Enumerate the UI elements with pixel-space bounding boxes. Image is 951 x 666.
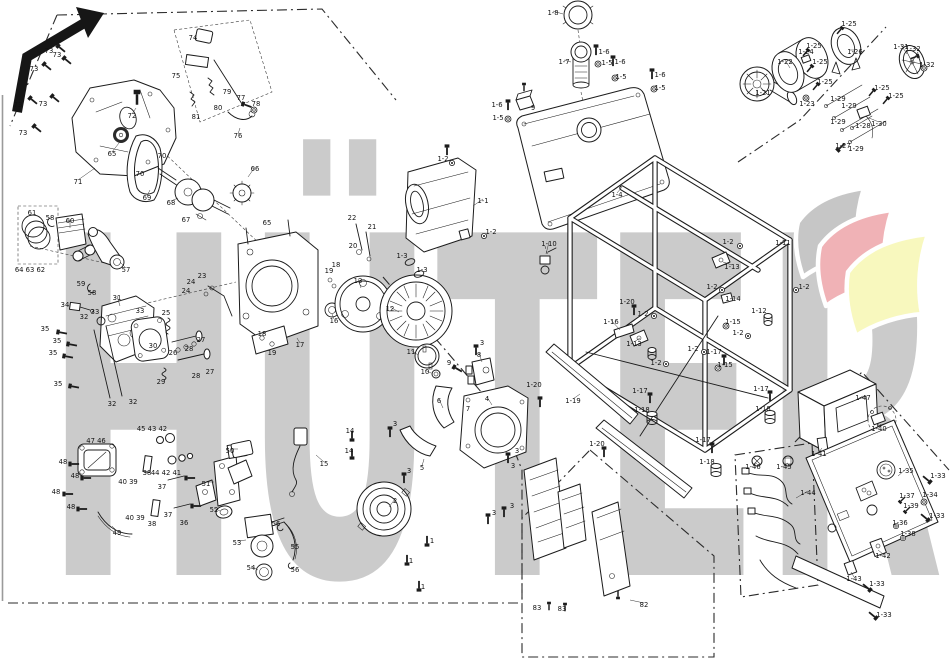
part-number-label: 1-41 (811, 450, 826, 458)
part-number-label: 1-15 (717, 361, 732, 369)
part-number-label: 1-47 (855, 394, 870, 402)
fuel-cap-part-1-8 (563, 1, 593, 29)
part-number-label: 40 39 (125, 514, 144, 522)
part-number-label: 28 (192, 372, 201, 380)
part-number-label: 34 (61, 301, 70, 309)
filler-neck-part-1-7 (571, 42, 591, 88)
exploded-parts-diagram: HÜTER (0, 0, 951, 666)
part-number-label: 1-3 (396, 252, 407, 260)
part-number-label: 9 (447, 359, 451, 367)
part-number-label: 1-6 (491, 101, 502, 109)
part-number-label: 38 (148, 520, 157, 528)
part-number-label: 48 (67, 503, 76, 511)
part-number-label: 65 (108, 150, 117, 158)
part-number-label: 1-5 (492, 114, 503, 122)
part-number-label: 72 (128, 112, 137, 120)
part-number-label: 1-8 (547, 9, 558, 17)
part-number-label: 14 (346, 427, 355, 435)
part-number-label: 35 (54, 380, 63, 388)
part-number-label: 1 (430, 537, 434, 545)
part-number-label: 1-37 (899, 492, 914, 500)
part-number-label: 2 (393, 497, 397, 505)
part-number-label: 1-18 (634, 406, 649, 414)
part-number-label: 1-33 (929, 512, 944, 520)
part-number-label: 6 (437, 397, 441, 405)
part-number-label: 1-17 (695, 436, 710, 444)
part-number-label: 32 (129, 398, 138, 406)
part-number-label: 1-25 (841, 20, 856, 28)
part-number-label: 1-14 (725, 295, 740, 303)
part-number-label: 56 (291, 566, 300, 574)
part-number-label: 1-17 (753, 385, 768, 393)
part-number-label: 30 (149, 342, 158, 350)
part-number-label: 65 (263, 219, 272, 227)
part-number-label: 70 (136, 170, 145, 178)
part-number-label: 1-40 (871, 425, 886, 433)
part-number-label: 1-2 (637, 310, 648, 318)
part-number-label: 1-21 (755, 89, 770, 97)
part-number-label: 1-30 (871, 120, 886, 128)
part-number-label: 37 (164, 511, 173, 519)
part-number-label: 1-10 (541, 240, 556, 248)
part-number-label: 1-1 (477, 197, 488, 205)
part-number-label: 29 (157, 378, 166, 386)
part-number-label: 7 (466, 405, 470, 413)
part-number-label: 31 (113, 294, 122, 302)
part-number-label: 44 42 41 (151, 469, 181, 477)
part-number-label: 83 (533, 604, 542, 612)
part-number-label: 69 (143, 194, 152, 202)
part-number-label: 28 (185, 345, 194, 353)
part-number-label: 40 39 (118, 478, 137, 486)
part-number-label: 64 63 62 (15, 266, 45, 274)
part-number-label: 75 (172, 72, 181, 80)
part-number-label: 61 (28, 209, 37, 217)
part-number-label: 1-5 (615, 73, 626, 81)
part-number-label: 54 (247, 564, 256, 572)
part-number-label: 27 (197, 336, 206, 344)
part-number-label: 53 (233, 539, 242, 547)
part-number-label: 57 (122, 266, 131, 274)
part-number-label: 67 (182, 216, 191, 224)
part-number-label: 1-6 (614, 58, 625, 66)
part-number-label: 13 (354, 277, 363, 285)
part-number-label: 1-18 (755, 405, 770, 413)
part-number-label: 78 (252, 100, 261, 108)
part-number-label: 45 43 42 (137, 425, 167, 433)
part-number-label: 68 (167, 199, 176, 207)
part-number-label: 70 (158, 152, 167, 160)
part-number-label: 38 (143, 469, 152, 477)
part-number-label: 1-15 (725, 318, 740, 326)
part-number-label: 1-43 (846, 575, 861, 583)
part-number-label: 19 (268, 349, 277, 357)
starter-cup-part-11 (415, 344, 439, 369)
part-number-label: 1-5 (601, 59, 612, 67)
part-number-label: 73 (30, 65, 39, 73)
part-number-label: 19 (325, 267, 334, 275)
part-number-label: 1-29 (830, 118, 845, 126)
part-number-label: 4 (485, 395, 489, 403)
part-number-label: 1-17 (706, 348, 721, 356)
part-number-label: 10 (421, 368, 430, 376)
part-number-label: 1-25 (812, 58, 827, 66)
part-number-label: 73 (39, 100, 48, 108)
part-number-label: 1-34 (922, 491, 937, 499)
part-number-label: 1-20 (589, 440, 604, 448)
part-number-label: 1-2 (798, 283, 809, 291)
part-number-label: 1-39 (903, 502, 918, 510)
part-number-label: 52 (210, 506, 219, 514)
part-number-label: 1-29 (841, 102, 856, 110)
part-number-label: 49 (113, 529, 122, 537)
part-number-label: 47 46 (86, 437, 105, 445)
part-number-label: 9 (531, 104, 535, 112)
part-number-label: 18 (258, 330, 267, 338)
part-number-label: 36 (180, 519, 189, 527)
part-number-label: 48 (59, 458, 68, 466)
part-number-label: 16 (330, 317, 339, 325)
part-number-label: 24 (182, 287, 191, 295)
part-number-label: 1-25 (888, 92, 903, 100)
part-number-label: 35 (49, 349, 58, 357)
part-number-label: 1-17 (632, 387, 647, 395)
part-number-label: 1-28 (855, 122, 870, 130)
part-number-label: 1-16 (603, 318, 618, 326)
part-number-label: 71 (74, 178, 83, 186)
part-number-label: 74 (189, 34, 198, 42)
part-number-label: 1-20 (619, 298, 634, 306)
part-number-label: 24 (187, 278, 196, 286)
part-number-label: 17 (296, 341, 305, 349)
part-number-label: 8 (477, 351, 481, 359)
part-number-label: 1-32 (919, 61, 934, 69)
part-number-label: 1-35 (898, 467, 913, 475)
head-gasket-part-33 (130, 316, 170, 362)
part-number-label: 1-2 (706, 283, 717, 291)
part-number-label: 22 (348, 214, 357, 222)
part-number-label: 1-25 (817, 78, 832, 86)
part-number-label: 3 (407, 467, 411, 475)
part-number-label: 1-25 (874, 84, 889, 92)
part-number-label: 55 (291, 543, 300, 551)
part-number-label: 1-13 (724, 263, 739, 271)
part-number-label: 1-25 (806, 42, 821, 50)
part-number-label: 1-32 (905, 45, 920, 53)
parts-diagram-page: HÜTER (0, 0, 951, 666)
part-number-label: 76 (234, 132, 243, 140)
part-number-label: 82 (640, 601, 649, 609)
flywheel-nut-part-10 (432, 370, 440, 378)
part-number-label: 14 (345, 447, 354, 455)
part-number-label: 58 (88, 289, 97, 297)
part-number-label: 83 (558, 605, 567, 613)
part-number-label: 1-2 (722, 238, 733, 246)
part-number-label: 35 (53, 337, 62, 345)
part-number-label: 1-42 (875, 552, 890, 560)
part-number-label: 15 (320, 460, 329, 468)
part-number-label: 5 (420, 464, 424, 472)
part-number-label: 1-23 (799, 100, 814, 108)
part-number-label: 56 (272, 520, 281, 528)
part-number-label: 33 (91, 308, 100, 316)
part-number-label: 1-26 (847, 48, 862, 56)
part-number-label: 27 (206, 368, 215, 376)
part-number-label: 50 (226, 447, 235, 455)
part-number-label: 1-45 (776, 463, 791, 471)
part-number-label: 1-19 (565, 397, 580, 405)
part-number-label: 25 (162, 309, 171, 317)
part-number-label: 48 (71, 472, 80, 480)
part-number-label: 48 (52, 488, 61, 496)
part-number-label: 33 (136, 307, 145, 315)
part-number-label: 1-20 (526, 381, 541, 389)
part-number-label: 1-38 (900, 530, 915, 538)
part-number-label: 81 (192, 113, 201, 121)
part-number-label: 60 (66, 217, 75, 225)
part-number-label: 73 (19, 129, 28, 137)
part-number-label: 80 (214, 104, 223, 112)
part-number-label: 3 (393, 420, 397, 428)
part-number-label: 1-44 (800, 489, 815, 497)
part-number-label: 32 (80, 313, 89, 321)
part-number-label: 1-29 (848, 145, 863, 153)
part-number-label: 1-12 (751, 307, 766, 315)
part-number-label: 1-33 (869, 580, 884, 588)
part-number-label: 1-2 (650, 359, 661, 367)
part-number-label: 3 (510, 502, 514, 510)
part-number-label: 66 (251, 165, 260, 173)
part-number-label: 1-36 (892, 519, 907, 527)
part-number-label: 1-3 (416, 266, 427, 274)
part-number-label: 1-33 (930, 472, 945, 480)
part-number-label: 1 (421, 583, 425, 591)
part-number-label: 11 (407, 348, 416, 356)
part-number-label: 3 (492, 509, 496, 517)
part-number-label: 3 (515, 447, 519, 455)
part-number-label: 3 (480, 339, 484, 347)
part-number-label: 58 (46, 214, 55, 222)
part-number-label: 1-13 (626, 340, 641, 348)
part-number-label: 1-2 (687, 345, 698, 353)
part-number-label: 35 (41, 325, 50, 333)
part-number-label: 1 (409, 557, 413, 565)
part-number-label: 23 (198, 272, 207, 280)
part-number-label: 1-6 (654, 71, 665, 79)
part-number-label: 1-2 (485, 228, 496, 236)
part-number-label: 1-2 (437, 155, 448, 163)
part-number-label: 32 (108, 400, 117, 408)
part-number-label: 51 (202, 480, 211, 488)
part-number-label: 1-4 (611, 191, 622, 199)
part-number-label: 1-2 (732, 329, 743, 337)
part-number-label: 77 (237, 94, 246, 102)
part-number-label: 20 (349, 242, 358, 250)
part-number-label: 1-7 (558, 58, 569, 66)
part-number-label: 1-5 (654, 84, 665, 92)
part-number-label: 1-6 (598, 48, 609, 56)
part-number-label: 26 (169, 349, 178, 357)
part-number-label: 12 (386, 305, 395, 313)
part-number-label: 1-18 (699, 458, 714, 466)
part-number-label: 79 (223, 88, 232, 96)
part-number-label: 59 (77, 280, 86, 288)
part-number-label: 21 (368, 223, 377, 231)
part-number-label: 73 (14, 101, 23, 109)
part-number-label: 1-22 (777, 58, 792, 66)
part-number-label: 1-46 (745, 463, 760, 471)
part-number-label: 1-11 (775, 239, 790, 247)
through-bolts-1-29 (824, 85, 886, 144)
part-number-label: 37 (158, 483, 167, 491)
part-number-label: 73 (53, 51, 62, 59)
part-number-label: 3 (511, 462, 515, 470)
part-number-label: 1-33 (876, 611, 891, 619)
